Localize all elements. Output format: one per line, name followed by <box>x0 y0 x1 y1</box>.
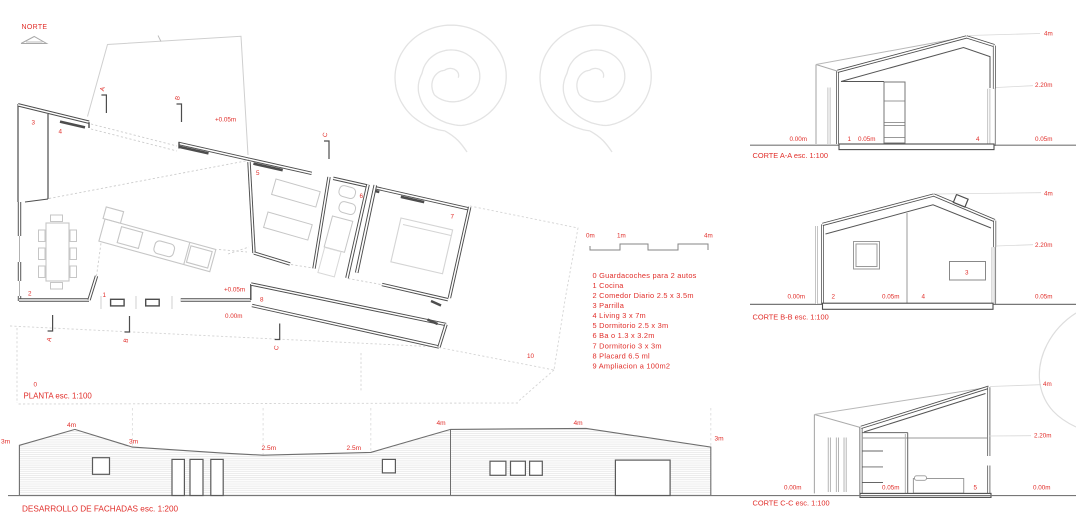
svg-text:8: 8 <box>260 297 264 304</box>
svg-text:4m: 4m <box>704 233 713 240</box>
svg-text:3: 3 <box>32 120 36 127</box>
svg-text:4: 4 <box>976 136 980 143</box>
svg-text:7 Dormitorio 3 x 3m: 7 Dormitorio 3 x 3m <box>593 341 662 350</box>
svg-text:3m: 3m <box>129 439 139 446</box>
svg-text:7: 7 <box>451 214 455 221</box>
svg-text:NORTE: NORTE <box>22 24 48 31</box>
svg-text:5: 5 <box>974 485 978 492</box>
svg-text:3 Parrilla: 3 Parrilla <box>593 301 625 310</box>
svg-text:CORTE C-C esc. 1:100: CORTE C-C esc. 1:100 <box>753 499 830 508</box>
svg-text:2.20m: 2.20m <box>1035 82 1053 89</box>
svg-text:6: 6 <box>360 193 364 200</box>
svg-text:10: 10 <box>527 353 535 360</box>
svg-text:CORTE A-A esc. 1:100: CORTE A-A esc. 1:100 <box>753 151 828 160</box>
svg-text:0.00m: 0.00m <box>790 136 808 143</box>
svg-text:0.05m: 0.05m <box>882 294 900 301</box>
svg-text:2 Comedor Diario 2.5 x 3.5m: 2 Comedor Diario 2.5 x 3.5m <box>593 291 694 300</box>
svg-text:4: 4 <box>922 294 926 301</box>
svg-text:4m: 4m <box>1043 381 1052 388</box>
svg-text:0.05m: 0.05m <box>882 485 900 492</box>
svg-text:+0.05m: +0.05m <box>224 287 245 294</box>
svg-text:1: 1 <box>848 136 852 143</box>
svg-text:1 Cocina: 1 Cocina <box>593 281 625 290</box>
svg-text:3m: 3m <box>715 436 725 443</box>
svg-text:0.00m: 0.00m <box>784 485 802 492</box>
svg-text:0.05m: 0.05m <box>1035 294 1053 301</box>
svg-text:6 Ba o 1.3 x 3.2m: 6 Ba o 1.3 x 3.2m <box>593 331 655 340</box>
svg-text:4m: 4m <box>67 422 77 429</box>
svg-text:4: 4 <box>59 129 63 136</box>
svg-text:2.20m: 2.20m <box>1035 242 1053 249</box>
svg-text:PLANTA esc. 1:100: PLANTA esc. 1:100 <box>24 392 93 401</box>
svg-text:8 Placard 6.5 ml: 8 Placard 6.5 ml <box>593 351 651 360</box>
svg-text:0.00m: 0.00m <box>1033 485 1051 492</box>
svg-text:4m: 4m <box>574 420 584 427</box>
svg-text:0 Guardacoches para 2 autos: 0 Guardacoches para 2 autos <box>593 271 697 280</box>
svg-text:4m: 4m <box>1044 191 1053 198</box>
svg-text:1m: 1m <box>617 233 626 240</box>
svg-text:2.5m: 2.5m <box>347 445 362 452</box>
svg-text:CORTE B-B esc. 1:100: CORTE B-B esc. 1:100 <box>753 313 829 322</box>
svg-text:0.00m: 0.00m <box>788 294 806 301</box>
svg-text:2.20m: 2.20m <box>1034 433 1052 440</box>
svg-text:DESARROLLO DE FACHADAS esc. 1:: DESARROLLO DE FACHADAS esc. 1:200 <box>22 505 179 514</box>
svg-text:4 Living 3 x 7m: 4 Living 3 x 7m <box>593 311 646 320</box>
svg-text:0.00m: 0.00m <box>225 313 243 320</box>
svg-text:9 Ampliacion a 100m2: 9 Ampliacion a 100m2 <box>593 361 671 370</box>
svg-text:2.5m: 2.5m <box>262 445 277 452</box>
svg-text:3m: 3m <box>1 439 11 446</box>
svg-text:3: 3 <box>965 270 969 277</box>
svg-text:5 Dormitorio 2.5 x 3m: 5 Dormitorio 2.5 x 3m <box>593 321 669 330</box>
svg-text:1: 1 <box>103 292 107 299</box>
svg-text:4m: 4m <box>437 420 447 427</box>
svg-text:0m: 0m <box>586 233 595 240</box>
svg-text:2: 2 <box>28 291 32 298</box>
svg-text:+0.05m: +0.05m <box>215 117 236 124</box>
svg-text:0.05m: 0.05m <box>1035 136 1053 143</box>
svg-text:0: 0 <box>34 382 38 389</box>
svg-text:0.05m: 0.05m <box>858 136 876 143</box>
svg-text:5: 5 <box>256 170 260 177</box>
svg-text:4m: 4m <box>1044 31 1053 38</box>
svg-text:2: 2 <box>832 294 836 301</box>
